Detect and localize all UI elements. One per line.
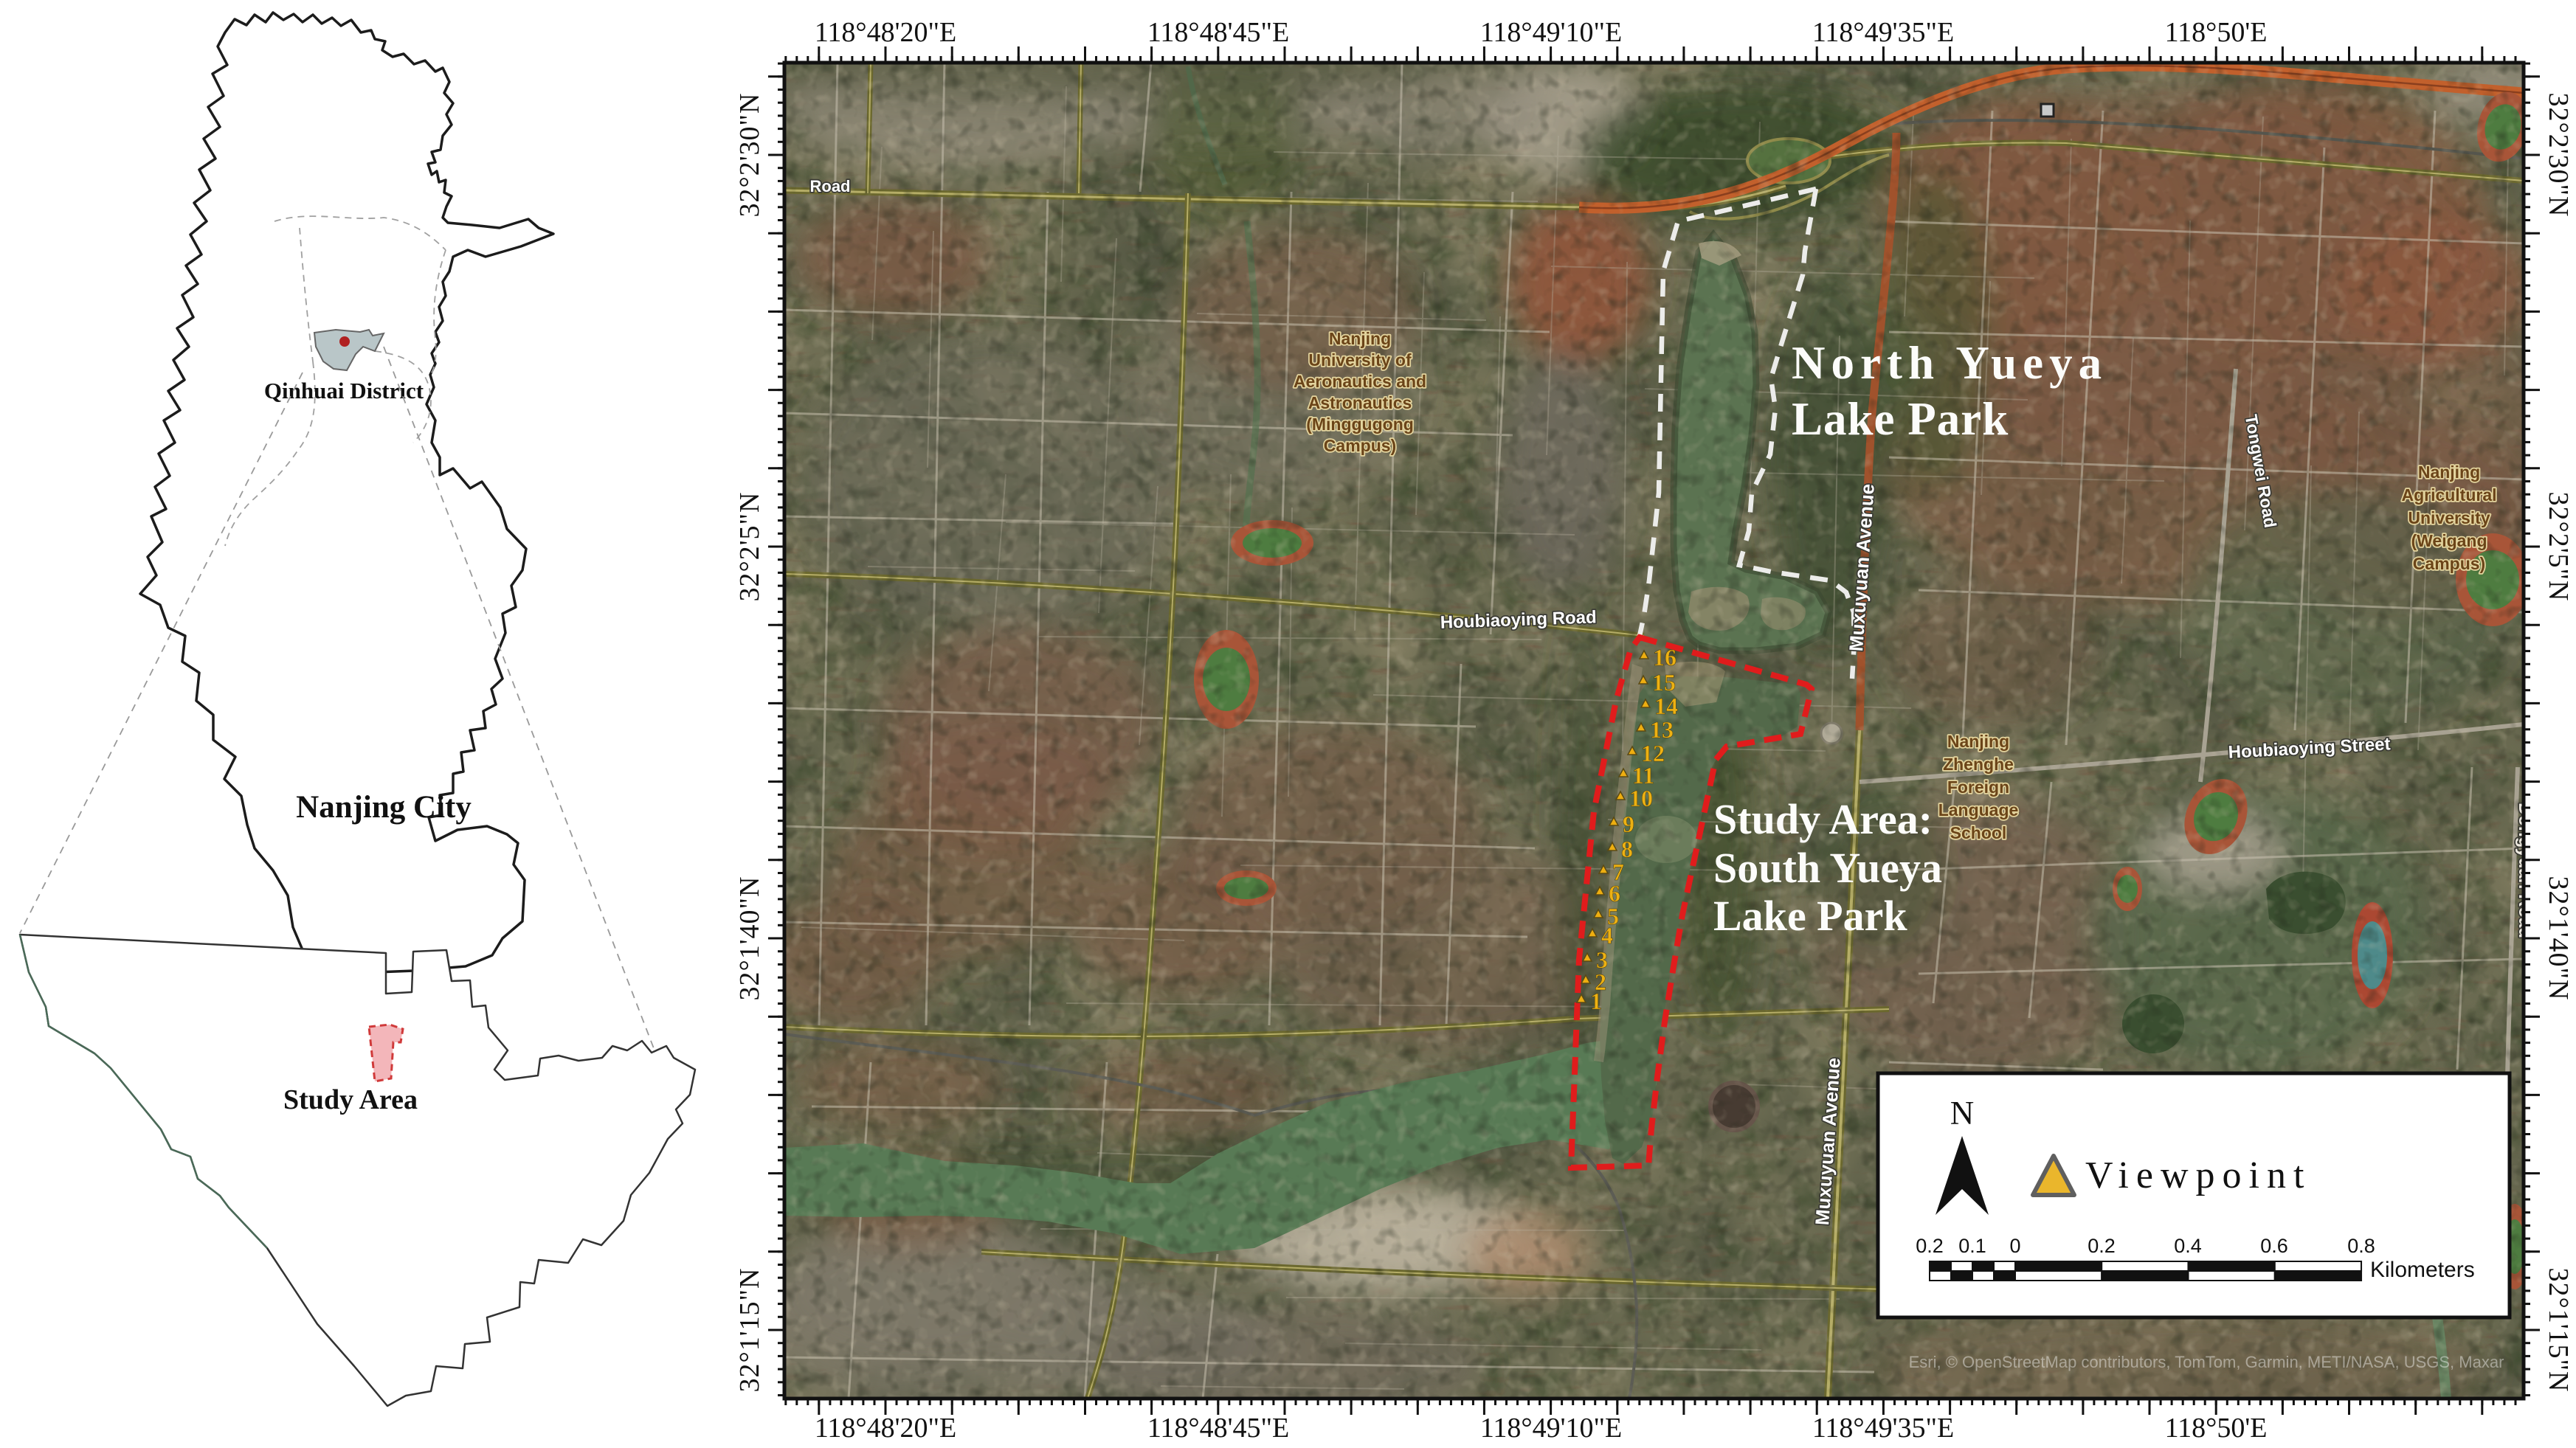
- svg-text:University of: University of: [1308, 350, 1412, 370]
- svg-text:118°49'10"E: 118°49'10"E: [1480, 17, 1622, 48]
- svg-text:118°50'E: 118°50'E: [2165, 17, 2268, 48]
- svg-text:32°1'40"N: 32°1'40"N: [2543, 876, 2574, 1001]
- svg-text:Viewpoint: Viewpoint: [2085, 1154, 2311, 1196]
- svg-text:13: 13: [1650, 716, 1674, 743]
- svg-text:3: 3: [1596, 946, 1608, 973]
- svg-text:0.8: 0.8: [2347, 1235, 2375, 1257]
- svg-text:32°1'40"N: 32°1'40"N: [734, 876, 765, 1001]
- svg-text:32°2'5"N: 32°2'5"N: [2543, 492, 2574, 602]
- svg-text:7: 7: [1612, 859, 1624, 885]
- svg-text:Nanjing: Nanjing: [1947, 732, 2009, 751]
- svg-text:0.2: 0.2: [1916, 1235, 1944, 1257]
- svg-text:Road: Road: [810, 177, 851, 195]
- svg-text:118°48'45"E: 118°48'45"E: [1147, 1413, 1289, 1444]
- svg-text:Foreign: Foreign: [1947, 777, 2009, 797]
- svg-text:9: 9: [1623, 811, 1634, 837]
- svg-text:118°49'35"E: 118°49'35"E: [1812, 17, 1954, 48]
- svg-text:8: 8: [1621, 836, 1633, 862]
- svg-text:Astronautics: Astronautics: [1308, 393, 1412, 412]
- svg-text:Study Area: Study Area: [283, 1084, 418, 1115]
- svg-text:0.1: 0.1: [1958, 1235, 1986, 1257]
- svg-text:Nanjing City: Nanjing City: [296, 790, 472, 825]
- svg-text:Campus): Campus): [1324, 436, 1396, 455]
- svg-text:N: N: [1950, 1095, 1975, 1132]
- svg-text:Study Area:: Study Area:: [1713, 795, 1933, 843]
- svg-text:5: 5: [1607, 903, 1619, 929]
- svg-text:32°2'30"N: 32°2'30"N: [2543, 93, 2574, 218]
- svg-text:16: 16: [1653, 644, 1677, 671]
- svg-text:Agricultural: Agricultural: [2401, 485, 2496, 505]
- svg-text:32°2'5"N: 32°2'5"N: [734, 492, 765, 602]
- svg-text:0.4: 0.4: [2174, 1235, 2202, 1257]
- svg-text:12: 12: [1641, 740, 1665, 766]
- svg-text:School: School: [1950, 823, 2007, 842]
- svg-text:Nanjing: Nanjing: [2418, 463, 2480, 482]
- svg-text:10: 10: [1629, 785, 1653, 811]
- svg-text:Language: Language: [1938, 800, 2019, 820]
- svg-text:University: University: [2408, 508, 2490, 527]
- svg-text:North Yueya: North Yueya: [1792, 337, 2107, 389]
- svg-text:0.6: 0.6: [2260, 1235, 2288, 1257]
- svg-text:Lake Park: Lake Park: [1713, 892, 1907, 940]
- svg-text:118°49'35"E: 118°49'35"E: [1812, 1413, 1954, 1444]
- svg-text:Kilometers: Kilometers: [2370, 1258, 2475, 1282]
- svg-text:118°48'20"E: 118°48'20"E: [815, 1413, 956, 1444]
- svg-text:Zhenghe: Zhenghe: [1943, 755, 2014, 774]
- svg-text:118°48'45"E: 118°48'45"E: [1147, 17, 1289, 48]
- svg-text:South Yueya: South Yueya: [1713, 844, 1942, 892]
- svg-text:15: 15: [1652, 669, 1676, 696]
- svg-text:(Weigang: (Weigang: [2411, 531, 2487, 550]
- svg-text:(Minggugong: (Minggugong: [1306, 415, 1414, 434]
- svg-text:Lake Park: Lake Park: [1792, 393, 2009, 445]
- svg-text:Campus): Campus): [2413, 554, 2485, 573]
- svg-text:32°2'30"N: 32°2'30"N: [734, 93, 765, 218]
- svg-text:0: 0: [2009, 1235, 2020, 1257]
- svg-text:32°1'15"N: 32°1'15"N: [2543, 1268, 2574, 1393]
- svg-text:118°50'E: 118°50'E: [2165, 1413, 2268, 1444]
- svg-text:Esri, © OpenStreetMap contribu: Esri, © OpenStreetMap contributors, TomT…: [1909, 1353, 2504, 1371]
- svg-text:32°1'15"N: 32°1'15"N: [734, 1268, 765, 1393]
- svg-text:118°49'10"E: 118°49'10"E: [1480, 1413, 1622, 1444]
- svg-text:Aeronautics and: Aeronautics and: [1294, 372, 1426, 391]
- svg-text:14: 14: [1654, 693, 1678, 719]
- svg-text:Nanjing: Nanjing: [1329, 329, 1391, 348]
- svg-text:0.2: 0.2: [2088, 1235, 2116, 1257]
- svg-text:118°48'20"E: 118°48'20"E: [815, 17, 956, 48]
